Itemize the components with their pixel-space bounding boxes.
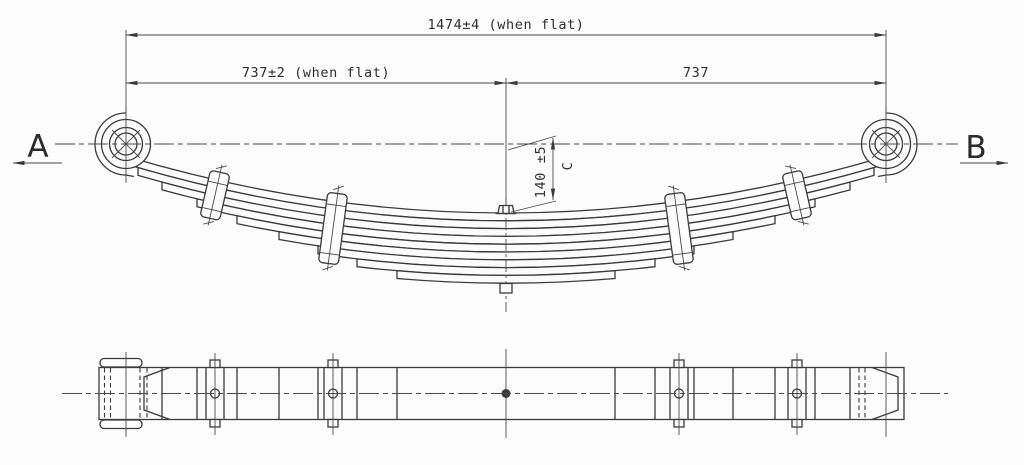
dimension-half-lengths: 737±2 (when flat) 737 [126, 65, 886, 203]
side-view: 1474±4 (when flat) 737±2 (when flat) 737… [13, 17, 1008, 312]
section-arrow-b: B [960, 130, 1008, 166]
section-label-b: B [965, 130, 986, 166]
section-label-a: A [27, 129, 48, 165]
dim-right-text: 737 [683, 65, 709, 81]
dim-height-ref-text: C [560, 162, 576, 171]
center-bolt-nut [500, 284, 512, 294]
dim-height-text: 140 ±5 [533, 146, 549, 198]
plan-view [62, 349, 948, 438]
dimension-camber-height: 140 ±5 C [508, 136, 576, 212]
oblique-extension-line [511, 201, 556, 212]
dim-left-text: 737±2 (when flat) [242, 65, 390, 81]
dim-overall-text: 1474±4 (when flat) [427, 17, 584, 33]
drawing-sheet: 1474±4 (when flat) 737±2 (when flat) 737… [0, 0, 1024, 465]
leaf-spring-technical-drawing: 1474±4 (when flat) 737±2 (when flat) 737… [0, 0, 1024, 465]
section-arrow-a: A [13, 129, 62, 165]
